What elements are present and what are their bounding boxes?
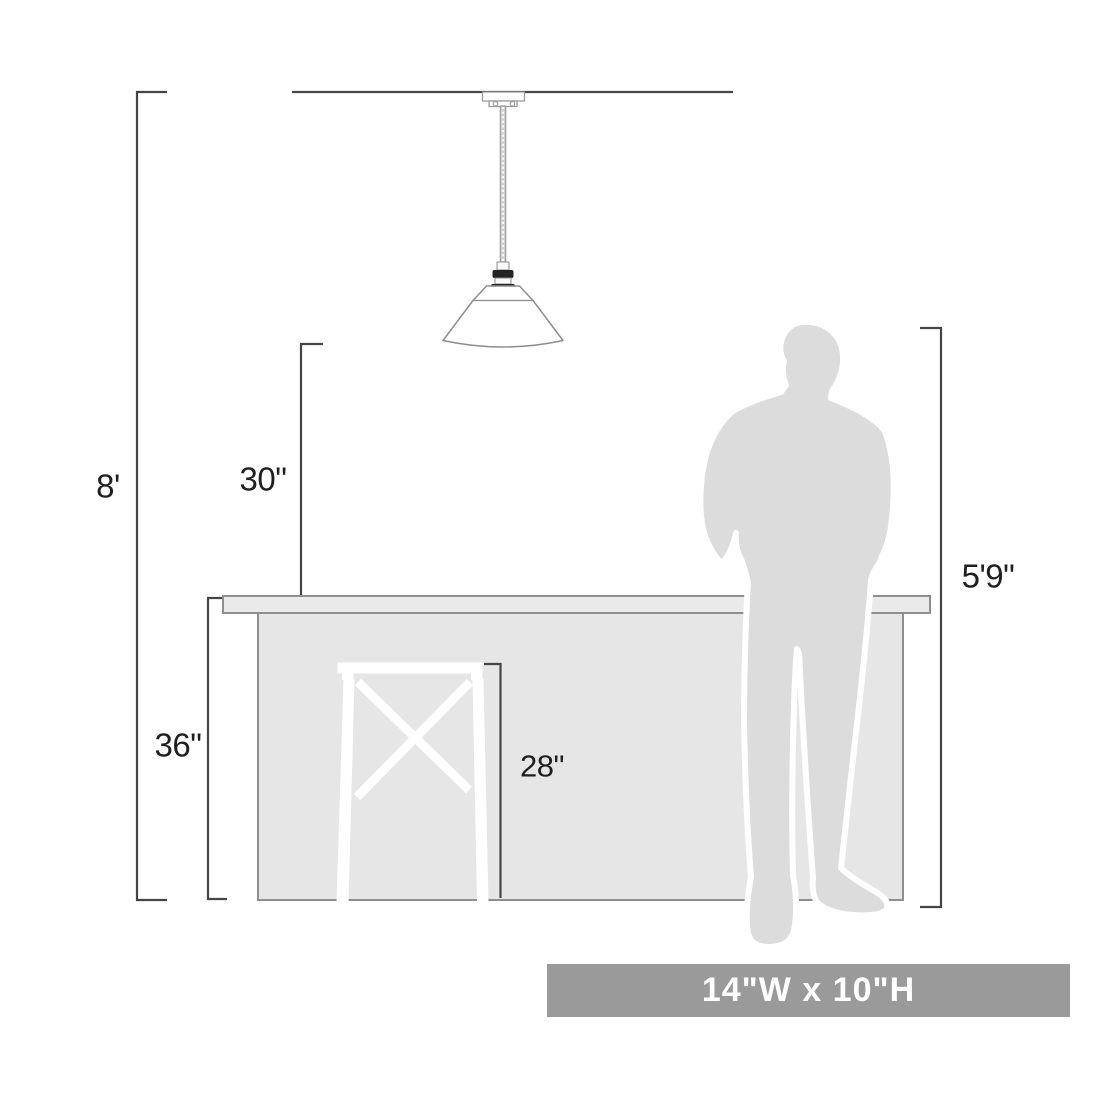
stool-seat [338,663,483,674]
size-banner: 14"W x 10"H [547,964,1070,1017]
label-fixture-clearance: 30" [240,463,287,496]
canopy-screw-icon [510,102,515,107]
pendant-shade [443,286,563,347]
label-counter-height: 36" [155,729,202,762]
size-banner-label: 14"W x 10"H [702,971,915,1010]
diagram-canvas: 8' 30" 36" 28" 5'9" 14"W x 10"H [0,0,1096,1096]
diagram-art [0,0,1096,1096]
dimension-bracket-5ft9in [920,328,941,907]
dimension-bracket-30in [301,344,323,595]
dimension-bracket-36in [208,598,227,899]
pendant-light [443,92,563,347]
label-ceiling-height: 8' [96,470,120,503]
pendant-cord [500,106,506,263]
label-stool-height: 28" [520,751,564,782]
canopy-screw-icon [493,102,498,107]
label-person-height: 5'9" [962,560,1015,593]
pendant-canopy [483,92,525,107]
dimension-bracket-8ft [137,92,167,900]
